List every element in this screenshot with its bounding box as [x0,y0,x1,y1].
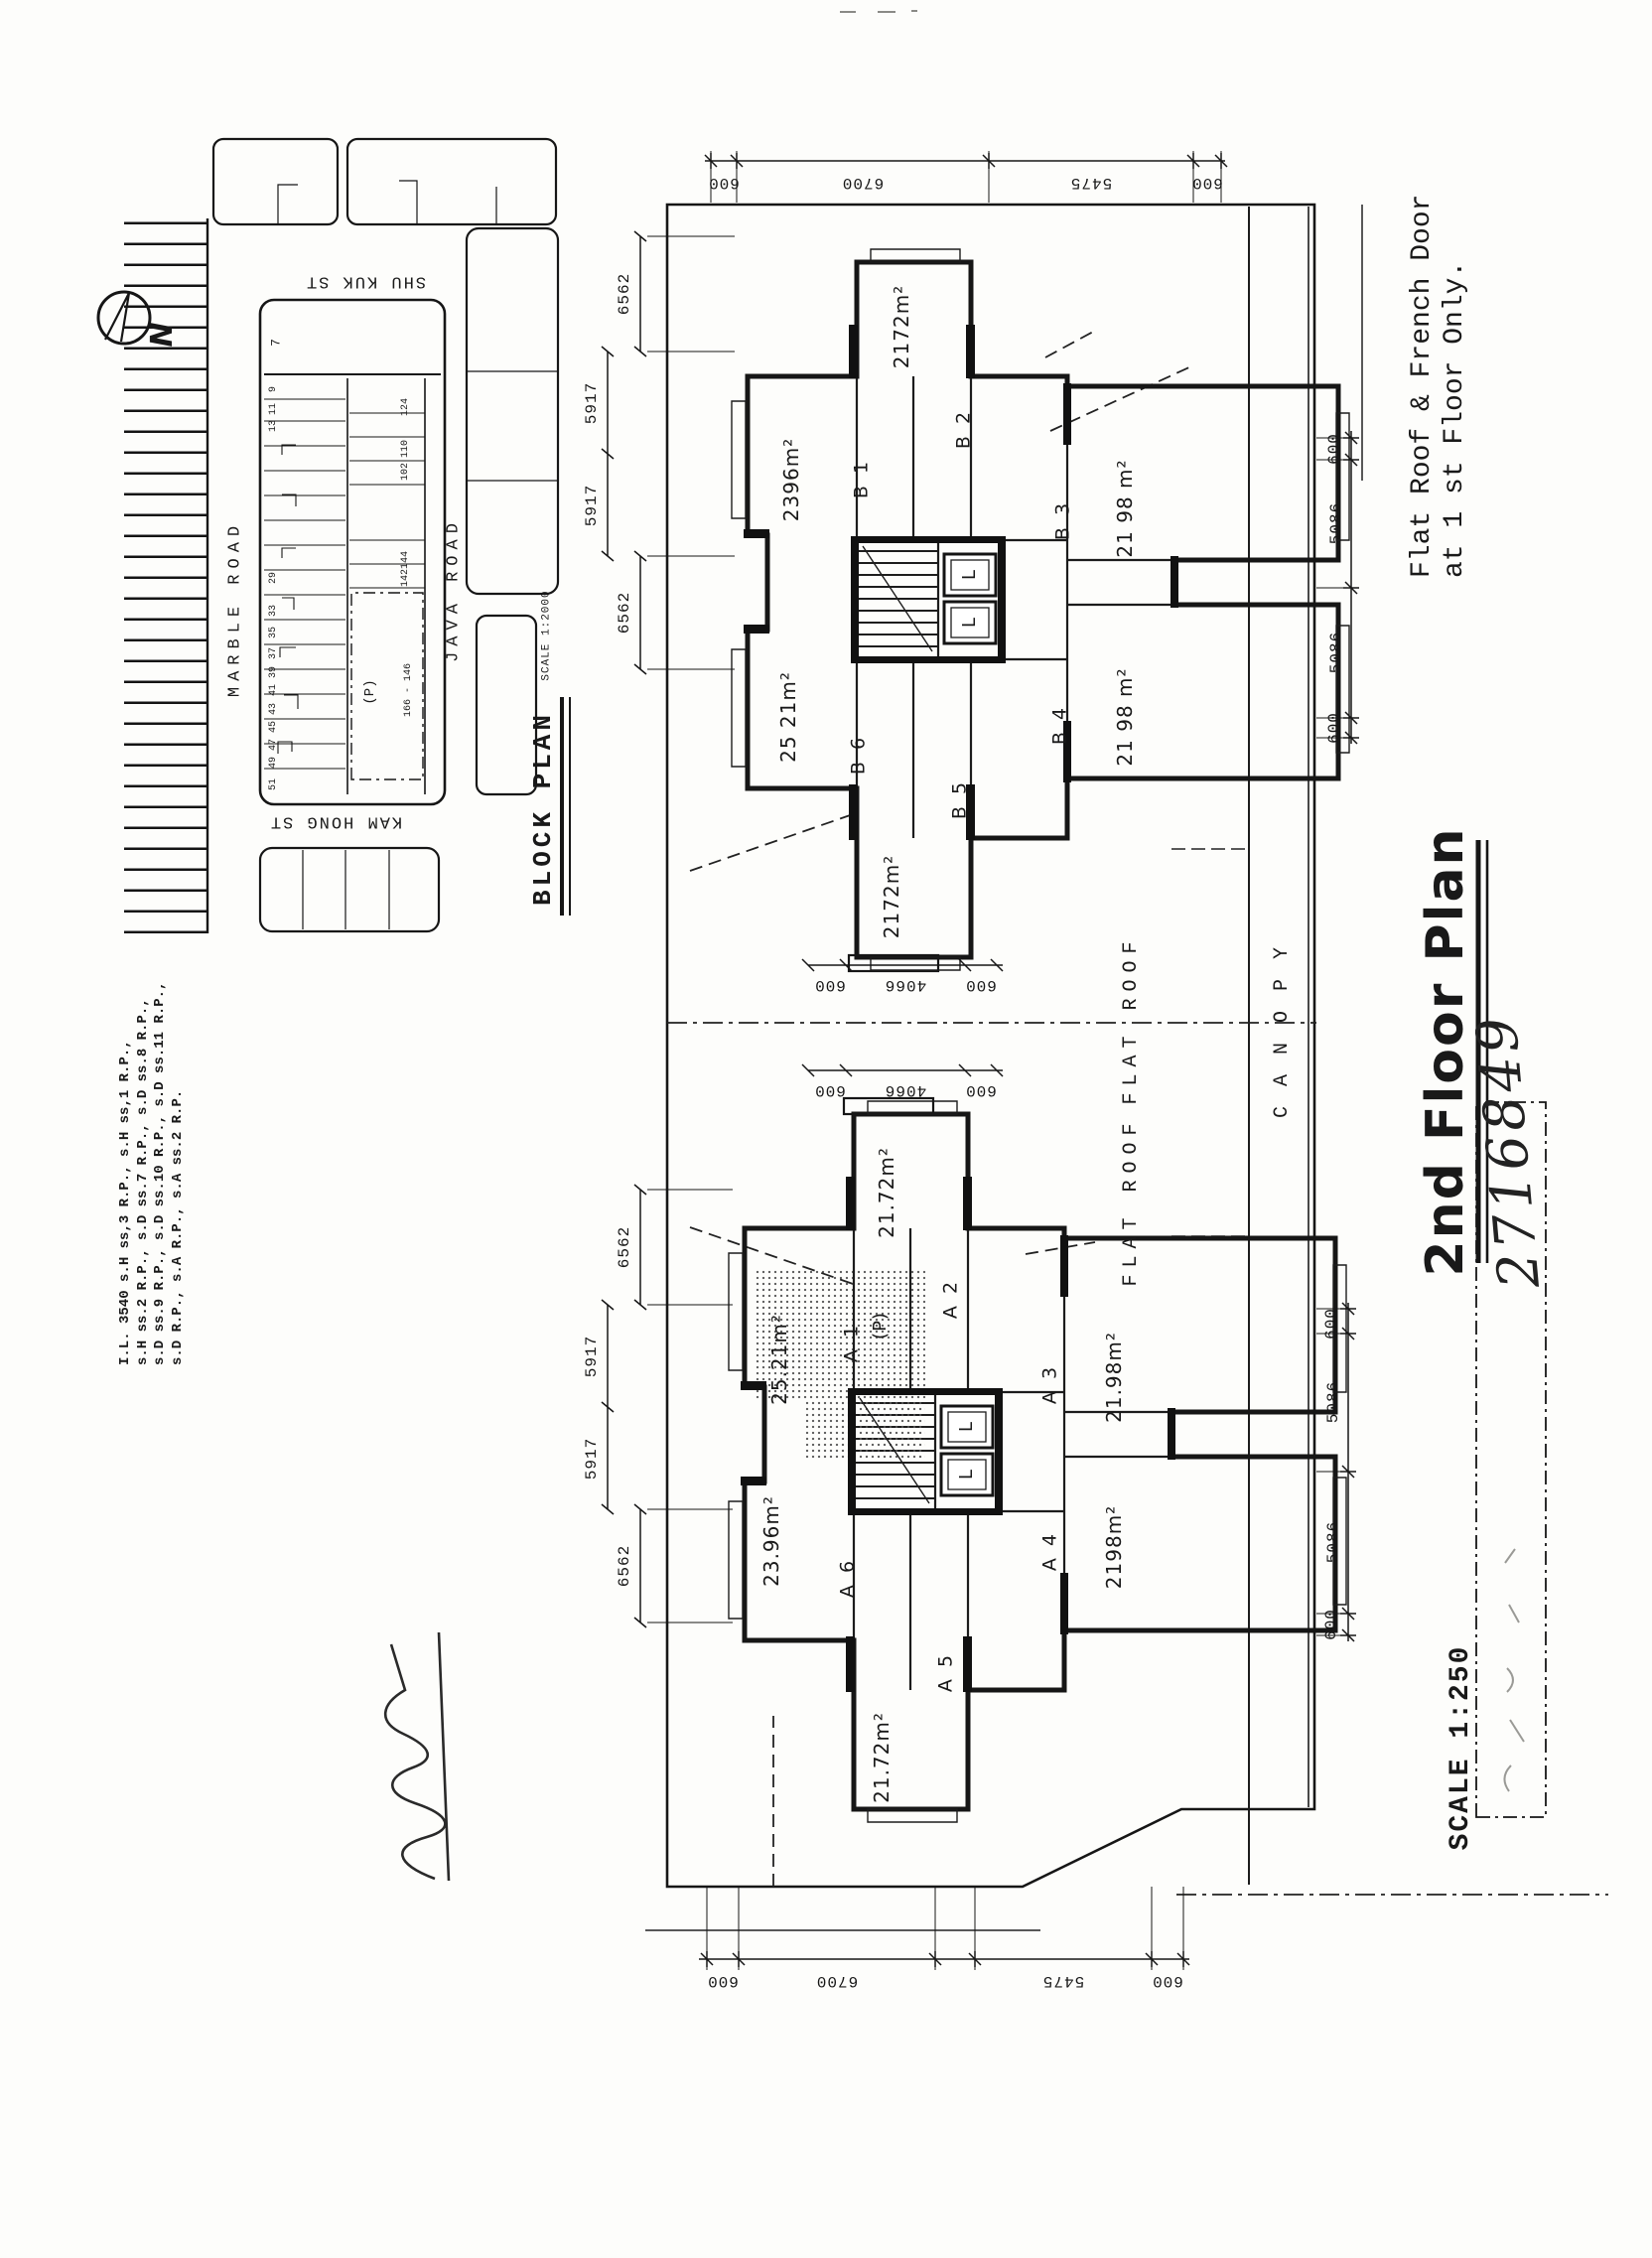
dim-value: 6562 [617,592,632,634]
parcel-number: 29 [269,572,279,584]
dim-value: 5086 [1325,1381,1341,1423]
dim-value: 600 [1326,712,1342,744]
dim-value: 600 [707,1973,739,1989]
scale-label: SCALE 1:250 [1447,1645,1475,1851]
dim-value: 5917 [584,1438,600,1480]
tower-b-footprint [732,249,1349,970]
unit-area-a2: 21.72m² [877,1147,896,1238]
dim-value: 4066 [885,1082,926,1098]
unit-label-a2: A 2 [942,1279,961,1319]
dim-value: 600 [1323,1609,1339,1640]
unit-area-a4: 2198m² [1104,1505,1124,1589]
unit-label-b3: B 3 [1054,500,1073,540]
north-arrow [98,292,150,344]
unit-label-a6: A 6 [839,1558,858,1598]
dim-value: 6562 [617,1545,632,1587]
canopy-label: CANOPY [1273,927,1293,1118]
street-shu-kuk: SHU KUK ST [305,273,426,290]
flat-roof-label-b: FLAT ROOF [1122,934,1142,1104]
unit-area-b2: 2172m² [892,285,911,368]
dim-value: 6562 [617,273,632,315]
tower-a-footprint [729,1101,1346,1822]
parcel-number: 124 [401,398,411,416]
lift-label: L [958,1422,976,1432]
street-marble: MARBLE ROAD [227,520,244,697]
dim-value: 600 [1152,1973,1183,1989]
unit-area-b1: 2396m² [781,438,801,521]
lot-description-line3: s.D ss.9 R.P., s.D ss.10 R.P., s.D ss.11… [152,982,170,1365]
lift-label: L [961,570,979,580]
dim-value: 600 [965,977,997,993]
unit-area-b6: 25 21m² [778,671,798,763]
unit-label-a3: A 3 [1041,1364,1060,1404]
scan-specks [840,11,917,12]
parcel-number: 9 [269,386,279,392]
signature-squiggle [385,1632,449,1881]
lot-description-line4: s.D R.P., s.A R.P., s.A ss.2 R.P. [170,982,188,1365]
block-parking-label: (P) [363,679,377,704]
dim-value: 600 [1191,175,1223,191]
title-block-linework [1476,840,1546,1817]
lift-label: L [961,618,979,628]
north-label: N [148,322,178,347]
dim-value: 5917 [584,1336,600,1377]
parcel-number: 37 [269,647,279,659]
parcel-number: 39 [269,666,279,678]
plan-linework [0,0,1652,2258]
parcel-number: 41 [269,684,279,696]
unit-label-b6: B 6 [850,735,869,775]
dim-value: 600 [708,175,740,191]
parcel-number: 45 [269,721,279,733]
parcel-number: 144 [401,551,411,569]
dim-value: 4066 [885,977,926,993]
unit-label-b5: B 5 [951,779,970,819]
dim-value: 5917 [584,485,600,526]
dim-value: 5475 [1042,1973,1084,1989]
parcel-number: 13 [269,420,279,432]
flat-roof-label-a: FLAT ROOF [1122,1116,1142,1286]
landscape-drawing: 2nd Floor Plan 2716849 SCALE 1:250 Flat … [0,0,1652,2258]
dim-value: 6700 [842,175,884,191]
flat-roof-note: Flat Roof & French Door at 1 st Floor On… [1406,195,1471,578]
street-java: JAVA ROAD [446,517,463,662]
unit-label-b1: B 1 [853,459,872,498]
dim-value: 5917 [584,382,600,424]
dim-value: 5475 [1070,175,1112,191]
unit-label-a4: A 4 [1041,1531,1060,1571]
unit-label-a5: A 5 [937,1652,956,1692]
flat-roof-note-line1: Flat Roof & French Door [1406,195,1439,578]
parcel-number: 142 [401,569,411,587]
planter-label: (P) [872,1312,890,1340]
lot-description: I.L. 3540 s.H ss,3 R.P., s.H ss,1 R.P., … [117,982,187,1365]
unit-area-a3: 21.98m² [1104,1332,1124,1423]
dimension-chains [602,151,1359,1970]
parcel-number: 35 [269,627,279,638]
lot-description-line2: s.H ss.2 R.P., s.D ss.7 R.P., s.D ss.8 R… [135,982,153,1365]
unit-label-b2: B 2 [955,409,974,449]
unit-area-b3: 21 98 m² [1115,459,1135,557]
parcel-number: 47 [269,739,279,751]
unit-label-a1: A 1 [843,1323,862,1362]
unit-area-b5: 2172m² [882,855,901,938]
street-kam-hong: KAM HONG ST [269,813,402,830]
dim-value: 600 [814,977,846,993]
parcel-number: 51 [269,778,279,790]
scanned-floor-plan-sheet: 2nd Floor Plan 2716849 SCALE 1:250 Flat … [0,0,1652,2258]
dim-value: 600 [814,1082,846,1098]
block-lot-7: 7 [270,339,283,347]
block-plan-scale: SCALE 1:2000 [542,590,553,680]
dim-value: 5086 [1328,502,1344,544]
dim-value: 5086 [1325,1521,1341,1563]
dim-value: 6562 [617,1226,632,1268]
drawing-title: 2nd Floor Plan [1420,826,1471,1276]
parcel-number: 33 [269,605,279,617]
unit-area-a1: 25.21m² [769,1314,789,1405]
block-address-range: 166 - 146 [404,663,414,717]
unit-area-b4: 21 98 m² [1115,667,1135,766]
parcel-number: 43 [269,703,279,715]
parcel-number: 11 [269,403,279,415]
unit-area-a6: 23.96m² [761,1495,781,1587]
dim-value: 600 [1326,433,1342,465]
parcel-number: 49 [269,757,279,769]
parcel-number: 102 [401,463,411,481]
lot-description-line1: I.L. 3540 s.H ss,3 R.P., s.H ss,1 R.P., [117,982,135,1365]
dim-value: 5086 [1328,632,1344,673]
block-plan-title: BLOCK PLAN [530,711,556,906]
lift-label: L [958,1470,976,1480]
dim-value: 6700 [816,1973,858,1989]
dim-value: 600 [1323,1308,1339,1340]
dim-value: 600 [965,1082,997,1098]
flat-roof-note-line2: at 1 st Floor Only. [1439,195,1471,578]
unit-area-a5: 21.72m² [872,1712,892,1803]
parcel-number: 110 [401,440,411,458]
unit-label-b4: B 4 [1051,705,1070,745]
